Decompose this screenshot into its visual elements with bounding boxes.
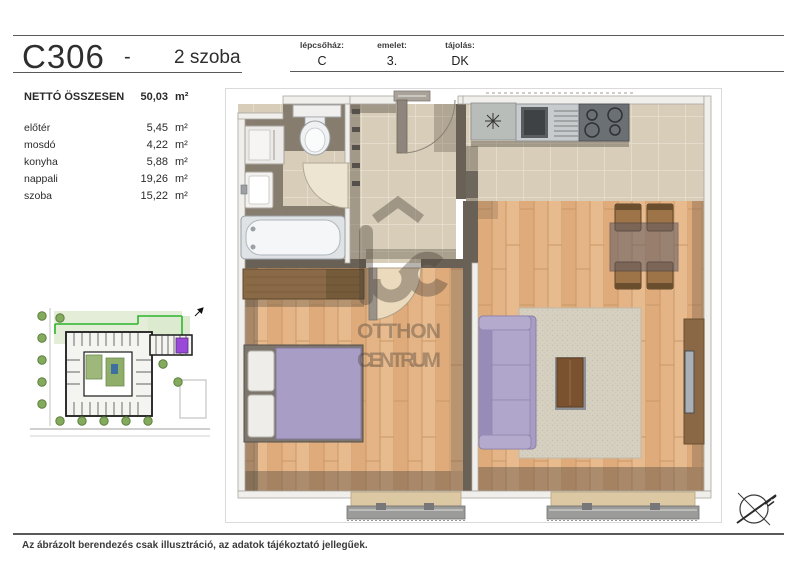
duvet [276,348,361,439]
header-top-rule [13,35,784,36]
kitchen-sink [521,107,548,138]
disclaimer-note: Az ábrázolt berendezés csak illusztráció… [22,540,368,551]
kitchen-counter [471,103,629,147]
washing-machine [245,126,284,164]
room-name: konyha [24,156,58,168]
room-unit: m² [175,122,188,134]
meta-floor-value: 3. [356,54,428,68]
room-name: előtér [24,122,50,134]
meta-staircase: lépcsőház: C [286,40,358,68]
meta-orientation: tájolás: DK [424,40,496,68]
floorplan-page: C306 - 2 szoba lépcsőház: C emelet: 3. t… [0,0,800,565]
room-unit: m² [175,156,188,168]
wing-building [150,335,192,355]
room-unit: m² [175,173,188,185]
unit-type: 2 szoba [174,47,241,69]
watermark-line2: CENTRUM [357,349,441,372]
utility-shaft [466,171,478,198]
tv-screen [685,351,694,413]
dining-table [610,223,678,271]
bed [244,345,363,442]
unit-id: C306 [22,38,105,76]
room-unit: m² [175,139,188,151]
total-unit: m² [175,91,188,103]
wardrobe [243,269,364,299]
room-value: 4,22 [122,139,168,151]
room-value: 19,26 [122,173,168,185]
floorplan-image: OTTHON CENTRUM [225,88,722,523]
tv-console [684,319,704,444]
highlighted-unit [176,338,188,353]
bathtub [241,216,345,259]
meta-staircase-value: C [286,54,358,68]
room-value: 15,22 [122,190,168,202]
room-unit: m² [175,190,188,202]
main-building [66,332,152,416]
meta-underline [290,71,784,72]
meta-floor-label: emelet: [356,40,428,50]
courtyard-garden [86,355,102,379]
pillow [248,351,274,391]
meta-staircase-label: lépcsőház: [286,40,358,50]
meta-floor: emelet: 3. [356,40,428,68]
bathroom-sink [241,172,273,208]
pillow [248,395,274,437]
watermark-line1: OTTHON [357,320,441,343]
ceiling-lamp-icon [485,113,501,129]
room-name: szoba [24,190,52,202]
livingroom-window [547,492,699,521]
title-separator: - [124,46,131,69]
footer-rule [13,533,784,535]
meta-orientation-label: tájolás: [424,40,496,50]
room-value: 5,88 [122,156,168,168]
room-name: mosdó [24,139,56,151]
site-plan-map [30,302,210,440]
meta-orientation-value: DK [424,54,496,68]
bedroom-window [347,492,465,521]
sofa [479,316,536,449]
stove [579,104,629,141]
room-name: nappali [24,173,58,185]
north-compass-icon [732,486,782,530]
total-value: 50,03 [122,91,168,103]
coffee-table [555,357,586,410]
total-label: NETTÓ ÖSSZESEN [24,91,124,103]
room-value: 5,45 [122,122,168,134]
